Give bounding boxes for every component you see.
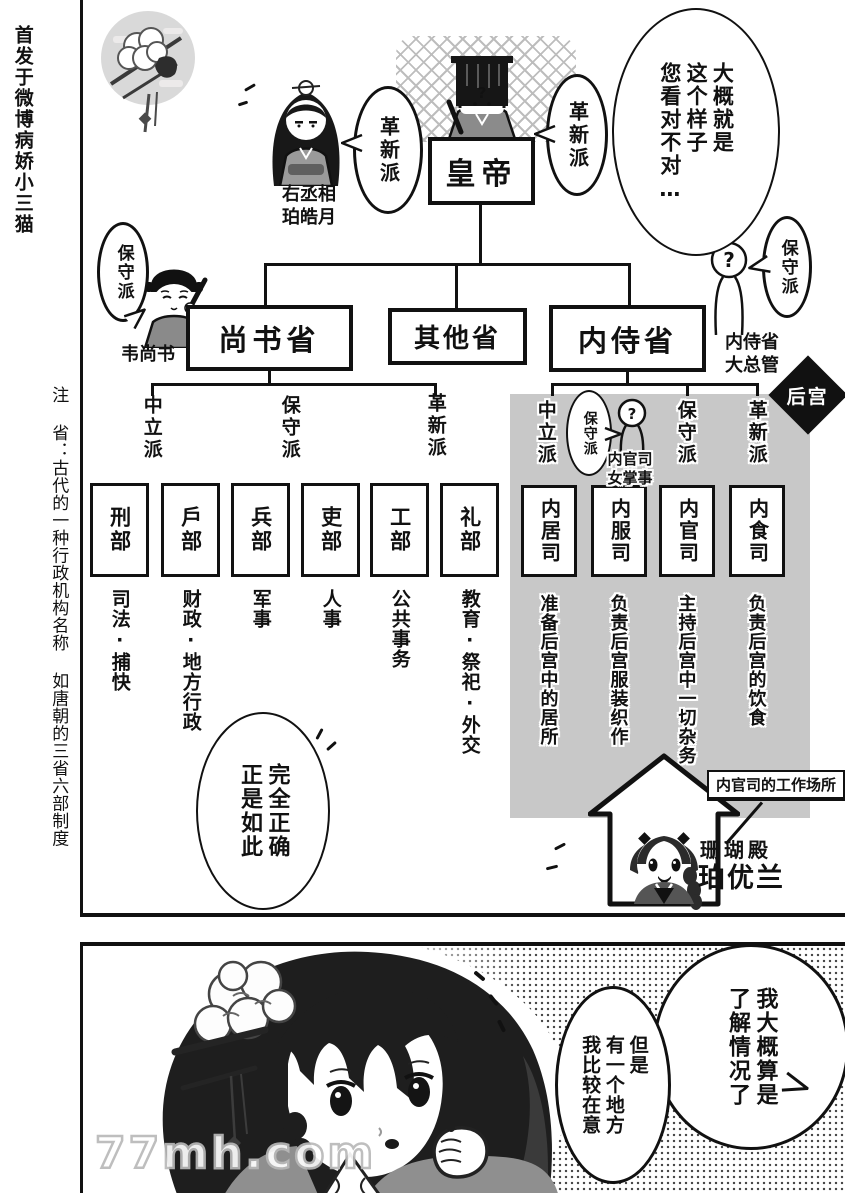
emperor-face-question: ? <box>478 84 487 102</box>
approval-bubble: 完全正确 正是如此 <box>196 712 330 910</box>
question-mark: ? <box>628 405 637 423</box>
conservative-bubble-eunuch-text: 保守派 <box>776 239 797 296</box>
faction-neutral: 中立派 <box>139 395 163 461</box>
bureau-desc: 负责后宫的饮食 <box>744 594 767 727</box>
faction-reformist: 革新派 <box>423 393 447 459</box>
accent-dash <box>244 83 256 92</box>
heroine-bubble-sub: 但是 有一个地方 我比较在意 <box>555 986 671 1184</box>
conservative-bubble-wei-text: 保守派 <box>112 244 133 301</box>
reformist-bubble-emperor-text: 革新派 <box>565 101 590 170</box>
ministry-desc: 教育·祭祀·外交 <box>457 589 481 755</box>
reformist-bubble-chancellor-text: 革新派 <box>376 116 401 185</box>
ministry-desc: 公共事务 <box>387 589 411 669</box>
wei-name: 韦尚书 <box>108 344 188 367</box>
ministry-box-gong: 工部 <box>370 483 429 577</box>
bubble-tail <box>341 133 363 153</box>
ministry-label: 刑部 <box>106 506 132 554</box>
qita-sheng-label: 其他省 <box>414 318 501 355</box>
bureau-label: 内服司 <box>607 498 632 564</box>
eunuch-figure: ? <box>706 240 752 335</box>
bureau-label: 内食司 <box>745 498 770 564</box>
heroine-bubble-main-text: 我大概算是 了解情况了 <box>724 987 779 1107</box>
connector <box>455 263 458 310</box>
neishi-sheng-box: 内侍省 <box>549 305 706 372</box>
shangshu-sheng-label: 尚书省 <box>218 317 320 359</box>
bureau-box-neiguan: 内官司 <box>659 485 715 577</box>
conservative-bubble-matron-text: 保守派 <box>580 411 598 456</box>
connector <box>551 383 759 386</box>
shangshu-sheng-box: 尚书省 <box>186 305 353 371</box>
heroine-bubble-sub-text: 但是 有一个地方 我比较在意 <box>577 1035 648 1135</box>
chancellor-figure <box>262 76 350 186</box>
connector <box>756 383 759 396</box>
bureau-box-neifu: 内服司 <box>591 485 647 577</box>
question-mark: ? <box>723 248 735 272</box>
ministry-label: 工部 <box>386 506 412 554</box>
ministry-desc: 人事 <box>318 589 342 629</box>
ministry-box-hu: 戶部 <box>161 483 220 577</box>
connector <box>686 383 689 396</box>
connector <box>151 383 437 386</box>
accent-dash <box>554 842 566 850</box>
ministry-label: 礼部 <box>456 506 482 554</box>
emperor-label: 皇帝 <box>446 149 518 193</box>
heroine-bubble-main: 我大概算是 了解情况了 <box>653 944 845 1150</box>
connector <box>479 204 482 266</box>
faction-conservative: 保守派 <box>277 395 301 461</box>
connector <box>551 383 554 396</box>
ministry-desc: 财政·地方行政 <box>178 589 202 732</box>
matron-title: 内官司 女掌事 <box>594 450 666 488</box>
emperor-figure: ? <box>429 46 535 139</box>
ministry-box-li: 吏部 <box>301 483 360 577</box>
accent-dash <box>315 728 323 740</box>
hall-name: 珊瑚殿 <box>700 838 796 863</box>
emperor-box: 皇帝 <box>428 137 535 205</box>
faction-reformist: 革新派 <box>744 400 768 466</box>
bureau-box-neishi: 内食司 <box>729 485 785 577</box>
translator-note: 注 省：古代的一种行政机构名称 如唐朝的三省六部制度 <box>47 386 68 856</box>
workplace-callout: 内官司的工作场所 <box>707 770 845 801</box>
panel1-left-border <box>80 0 83 916</box>
emperor-speech-text: 大概就是 这个样子 您看对不对… <box>657 62 736 203</box>
accent-dash <box>326 741 337 751</box>
approval-bubble-text: 完全正确 正是如此 <box>236 763 291 859</box>
emperor-speech-bubble: 大概就是 这个样子 您看对不对… <box>612 8 780 256</box>
workplace-callout-text: 内官司的工作场所 <box>716 774 836 795</box>
bureau-box-neiju: 内居司 <box>521 485 577 577</box>
ministry-label: 吏部 <box>317 506 343 554</box>
eunuch-title: 内侍省 大总管 <box>700 332 804 377</box>
accent-dash <box>546 865 558 871</box>
neishi-sheng-label: 内侍省 <box>578 318 677 360</box>
ministry-box-xing: 刑部 <box>90 483 149 577</box>
site-watermark: 77mh.com <box>95 1128 376 1179</box>
resident-name: 珀优兰 <box>698 862 818 896</box>
panel1-bottom-border <box>80 913 845 917</box>
manga-page: 首发于微博病娇小三猫 注 省：古代的一种行政机构名称 如唐朝的三省六部制度 ? <box>0 0 845 1193</box>
connector <box>264 263 267 307</box>
studio-seal-logo <box>93 6 201 144</box>
bureau-label: 内居司 <box>537 498 562 564</box>
faction-neutral: 中立派 <box>533 400 557 466</box>
bureau-desc: 准备后宫中的居所 <box>536 594 559 746</box>
bureau-desc: 主持后宫中一切杂务 <box>674 594 697 765</box>
credit-note: 首发于微博病娇小三猫 <box>10 25 34 235</box>
harem-badge-text: 后宫 <box>787 381 829 408</box>
connector <box>628 263 631 307</box>
ministry-box-libu: 礼部 <box>440 483 499 577</box>
connector <box>264 263 631 266</box>
ministry-box-bing: 兵部 <box>231 483 290 577</box>
bubble-tail <box>534 124 556 144</box>
ministry-desc: 军事 <box>248 589 272 629</box>
bubble-tail <box>604 426 622 442</box>
faction-conservative: 保守派 <box>673 400 697 466</box>
bureau-desc: 负责后宫服装织作 <box>606 594 629 746</box>
reformist-bubble-chancellor: 革新派 <box>353 86 423 214</box>
bureau-label: 内官司 <box>675 498 700 564</box>
ministry-label: 兵部 <box>247 506 273 554</box>
accent-dash <box>238 101 248 107</box>
chancellor-name: 右丞相 珀皓月 <box>263 184 355 229</box>
ministry-label: 戶部 <box>177 506 203 554</box>
qita-sheng-box: 其他省 <box>388 308 527 365</box>
ministry-desc: 司法·捕快 <box>107 589 131 692</box>
bottom-panel: 我大概算是 了解情况了 但是 有一个地方 我比较在意 77mh.com <box>80 942 845 1193</box>
